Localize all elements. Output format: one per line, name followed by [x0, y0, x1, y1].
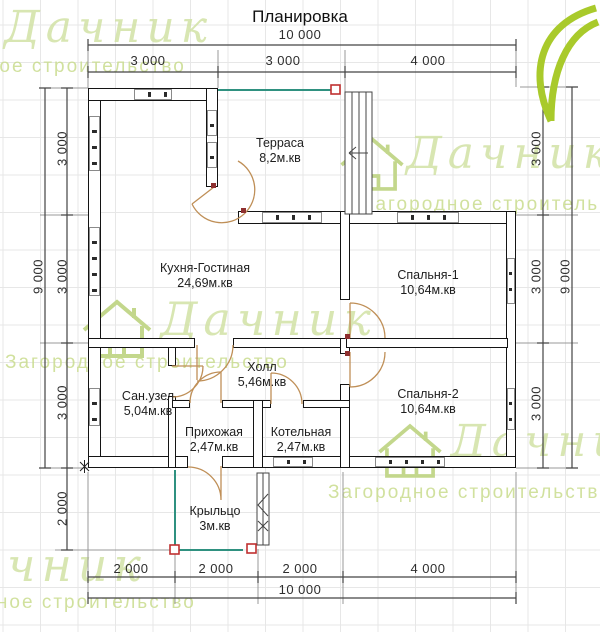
room-label-terrace: Терраса 8,2м.кв	[210, 136, 350, 165]
page-title: Планировка	[200, 7, 400, 27]
room-name: Котельная	[231, 425, 371, 440]
dim-left-segment: 3 000	[55, 371, 70, 435]
room-name: Холл	[192, 360, 332, 375]
room-name: Терраса	[210, 136, 350, 151]
dim-bottom-total: 10 000	[260, 582, 340, 597]
room-area: 10,64м.кв	[358, 283, 498, 298]
dim-bottom-segment: 4 000	[388, 561, 468, 576]
room-name: Кухня-Гостиная	[135, 261, 275, 276]
dim-left-total: 9 000	[31, 245, 46, 309]
dim-top-segment: 4 000	[388, 53, 468, 68]
room-name: Сан.узел	[78, 389, 218, 404]
dim-left-segment: 3 000	[55, 245, 70, 309]
room-area: 24,69м.кв	[135, 276, 275, 291]
dim-bottom-segment: 2 000	[91, 561, 171, 576]
room-label-porch: Крыльцо 3м.кв	[145, 504, 285, 533]
dim-top-segment: 3 000	[243, 53, 323, 68]
room-name: Крыльцо	[145, 504, 285, 519]
floor-plan-canvas: Дачник Загородное строительство Дачник З…	[0, 0, 600, 632]
room-label-bedroom2: Спальня-2 10,64м.кв	[358, 387, 498, 416]
dim-bottom-segment: 2 000	[260, 561, 340, 576]
room-area: 10,64м.кв	[358, 402, 498, 417]
dim-left-porch: 2 000	[55, 477, 70, 541]
room-label-boiler: Котельная 2,47м.кв	[231, 425, 371, 454]
dim-top-total: 10 000	[260, 27, 340, 42]
door-bedroom2-arc	[350, 352, 385, 387]
dim-right-segment: 3 000	[529, 117, 544, 181]
room-area: 5,46м.кв	[192, 375, 332, 390]
room-label-bedroom1: Спальня-1 10,64м.кв	[358, 268, 498, 297]
room-label-kitchen-living: Кухня-Гостиная 24,69м.кв	[135, 261, 275, 290]
room-area: 5,04м.кв	[78, 404, 218, 419]
room-name: Спальня-1	[358, 268, 498, 283]
room-area: 3м.кв	[145, 519, 285, 534]
snap-marker	[80, 460, 89, 473]
room-area: 2,47м.кв	[231, 440, 371, 455]
dim-bottom-segment: 2 000	[176, 561, 256, 576]
room-area: 8,2м.кв	[210, 151, 350, 166]
door-entry-arc	[188, 466, 221, 500]
dim-left-segment: 3 000	[55, 117, 70, 181]
door-terrace-arc	[192, 161, 255, 223]
door-bedroom1-arc	[350, 303, 385, 338]
dim-right-total: 9 000	[558, 245, 573, 309]
dim-right-segment: 3 000	[529, 245, 544, 309]
plan-symbols	[0, 0, 600, 632]
dacha-logo-leaf-icon	[540, 8, 598, 121]
room-label-hall: Холл 5,46м.кв	[192, 360, 332, 389]
room-label-bathroom: Сан.узел 5,04м.кв	[78, 389, 218, 418]
dim-top-segment: 3 000	[108, 53, 188, 68]
room-name: Спальня-2	[358, 387, 498, 402]
dim-right-segment: 3 000	[529, 372, 544, 436]
